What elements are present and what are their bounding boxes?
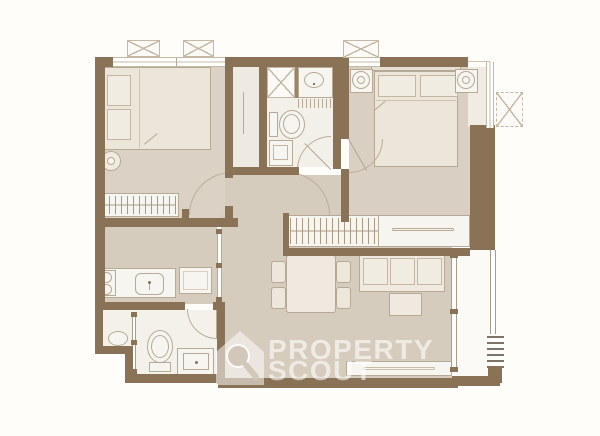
wall-master-left-upper	[341, 57, 349, 139]
sofa-cushion-left	[363, 258, 388, 285]
bathroom1-washing-machine-inner	[273, 145, 288, 160]
ac-condenser-3	[343, 40, 379, 58]
sofa-cushion-right	[417, 258, 442, 285]
closet-niche-floor	[233, 67, 259, 167]
dining-table	[286, 255, 336, 313]
hall-door-jamb	[182, 209, 189, 218]
kitchen-partition-node-top	[216, 229, 222, 234]
hall-wardrobe-divider	[378, 216, 379, 246]
window-bay-top-line	[468, 61, 490, 62]
balcony-slider-node-middle	[450, 309, 458, 314]
balcony-railing	[490, 250, 496, 334]
wall-master-left-lower	[341, 169, 349, 222]
balcony-louver-vent	[487, 334, 504, 368]
kitchen-sink-faucet-dot	[148, 281, 151, 284]
bathroom2-partition-node-middle	[131, 340, 137, 345]
bedroom2-window	[113, 57, 230, 67]
bathroom1-washbasin-faucet-dot	[313, 83, 315, 85]
bathroom2-vanity-faucet-dot	[195, 361, 198, 364]
dining-chair-bottom-right	[336, 287, 351, 309]
bedroom2-pillow-top	[107, 75, 131, 106]
wall-right-chunk	[470, 125, 495, 250]
bathroom1-washbasin	[304, 72, 324, 88]
ac-condenser-2	[183, 40, 214, 57]
watermark-logo-house-magnifier-icon	[211, 325, 269, 389]
bathroom2-partition-node-top	[131, 312, 137, 317]
sofa-cushion-middle	[390, 258, 415, 285]
bathroom1-towel-rack	[298, 99, 333, 108]
floor-plan: PROPERTY SCOUT	[0, 0, 600, 436]
balcony-slider-node-bottom	[450, 367, 458, 372]
wall-bedroom2-bottom	[95, 218, 238, 227]
watermark-text-line2: SCOUT	[268, 357, 374, 385]
ac-condenser-4	[496, 92, 523, 127]
bedroom2-bed-sheet-line	[139, 69, 140, 148]
ac-condenser-1	[127, 40, 160, 57]
kitchen-partition-node-middle	[216, 263, 222, 268]
wall-top-right	[380, 57, 468, 67]
hall-dresser-handle	[392, 228, 454, 231]
bathroom1-toilet-bowl-inner	[283, 114, 300, 134]
wall-bedroom2-door-stub	[225, 206, 233, 218]
master-nightstand-right-lamp-center	[462, 76, 470, 84]
master-nightstand-left-lamp-center	[357, 76, 365, 84]
wall-bathroom1-bottom	[233, 167, 299, 175]
hall-wardrobe-hangers	[290, 218, 378, 244]
wall-kitchen-bottom-left	[95, 302, 185, 310]
wall-balcony-corner	[488, 366, 502, 383]
kitchen-refrigerator-inner	[183, 271, 208, 290]
bathroom2-toilet-bowl-inner	[151, 335, 169, 358]
master-pillow-left	[378, 75, 416, 97]
bedroom2-plant-center	[107, 157, 115, 165]
dining-chair-top-right	[336, 261, 351, 283]
bathroom1-shower	[267, 67, 295, 98]
bathroom1-toilet-tank	[269, 112, 278, 137]
bedroom2-pillow-bottom	[107, 109, 131, 140]
coffee-table	[389, 293, 422, 316]
bathroom2-toilet-tank	[149, 362, 171, 372]
master-top-window	[348, 57, 380, 67]
wall-wardrobe-bottom	[283, 248, 470, 256]
bedroom2-wardrobe-hangers	[103, 196, 176, 214]
master-right-window	[486, 62, 494, 128]
watermark: PROPERTY SCOUT	[211, 325, 441, 391]
dining-chair-bottom-left	[271, 287, 286, 309]
wall-left	[95, 57, 105, 310]
bedroom2-window-mullion	[176, 58, 177, 66]
closet-niche-door-line	[243, 92, 244, 134]
master-pillow-right	[420, 75, 458, 97]
master-bed-sheet-line	[376, 100, 456, 101]
wall-bathroom1-right	[333, 57, 341, 169]
dining-chair-top-left	[271, 261, 286, 283]
wall-bedroom2-right	[225, 57, 233, 178]
wall-bathroom1-left	[259, 57, 267, 175]
bathroom2-drain-basin	[108, 331, 128, 346]
wall-bathroom2-bottom	[125, 374, 223, 383]
wall-top-middle	[230, 57, 348, 67]
